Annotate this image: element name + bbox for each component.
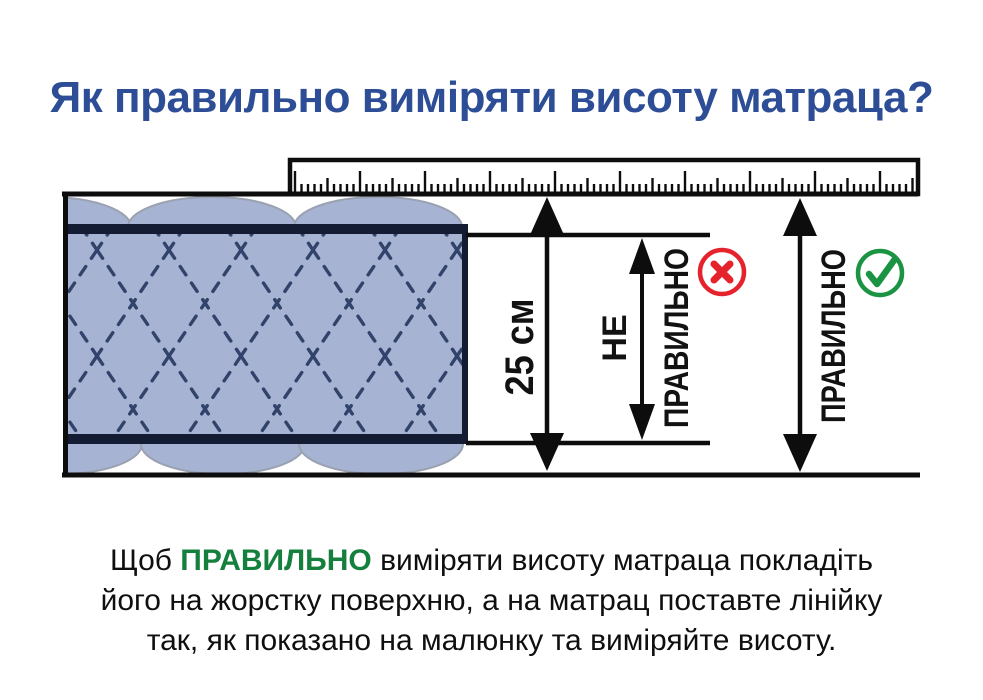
caption-line-3: так, як показано на малюнку та виміряйте… xyxy=(0,621,983,661)
label-ne: НЕ xyxy=(596,314,634,361)
ruler xyxy=(290,160,918,194)
correct-measure-arrow xyxy=(783,198,817,472)
label-ne-pravylno: ПРАВИЛЬНО xyxy=(658,248,696,428)
cross-icon xyxy=(700,250,744,294)
mattress-body xyxy=(66,224,468,444)
caption-highlight-pravylno: ПРАВИЛЬНО xyxy=(180,544,371,577)
caption-line-2: його на жорстку поверхню, а на матрац по… xyxy=(0,581,983,621)
caption-line-1: Щоб ПРАВИЛЬНО виміряти висоту матраца по… xyxy=(0,541,983,581)
check-icon xyxy=(858,251,902,295)
label-pravylno: ПРАВИЛЬНО xyxy=(815,249,853,423)
caption-text: Щоб ПРАВИЛЬНО виміряти висоту матраца по… xyxy=(0,541,983,661)
label-25cm: 25 см xyxy=(498,299,542,396)
caption-line1-pre: Щоб xyxy=(110,544,180,577)
caption-line1-post: виміряти висоту матраца покладіть xyxy=(372,544,873,577)
